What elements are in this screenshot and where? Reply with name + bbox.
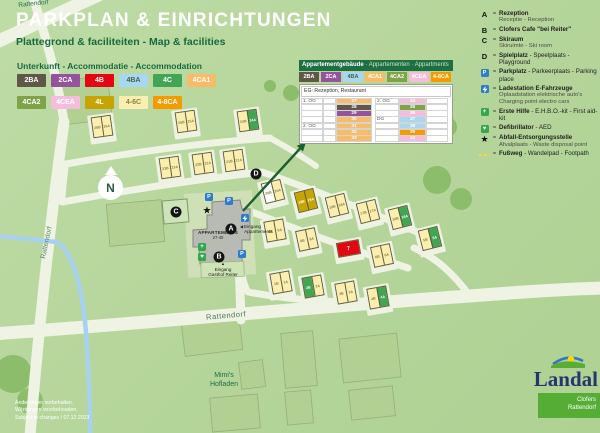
legend-term: Rezeption [499,10,529,17]
legend-letter-a-icon: A [482,11,487,19]
apartment-table-body: EG: Rezeption, Restaurant 1. OG272829302… [299,84,453,144]
cafe-b-marker: B [214,252,225,263]
first-aid-icon: + [481,108,489,116]
park-name-line-2: Rattendorf [538,404,596,412]
accommodation-badge-4CA1: 4CA1 [187,74,216,87]
waste-star-icon: ★ [480,135,488,144]
div-shape: ★ [479,135,490,144]
legend-subtext: Charging point electro cars [499,99,582,106]
apartment-table-header: Appartementgebäude · Appartementen · App… [299,60,453,71]
legend-subtext: Receptie - Reception [499,17,554,24]
legend-separator: = [490,10,499,18]
legend-letter-d-icon: D [482,53,487,61]
polygon-shape [243,215,248,222]
legend-text: Fußweg - Wandelpad - Footpath [499,150,589,157]
legend-separator: = [490,85,499,93]
disclaimer: Änderungen vorbehalten. Wijzigingen voor… [15,400,89,422]
apartment-table-row: 40 [375,136,448,142]
landal-wordmark: Landal [498,369,600,390]
parking-3-icon: P [238,250,246,258]
parking-icon: P [481,69,489,77]
legend-text: Parkplatz - Parkeerplaats - Parking plac… [499,68,599,83]
div-shape [479,151,490,157]
legend-subtext: Oplaadstation elektrische auto's [499,92,582,99]
apartment-33-cell: 33 [336,135,372,142]
accommodation-badges-row-1: 2BA2CA4B4BA4C4CA1 [17,74,216,87]
legend-separator: = [490,124,499,132]
legend-term: Erste Hilfe [499,108,530,115]
disclaimer-line-2: Wijzigingen voorbehouden. [15,407,89,414]
parking-1-icon: P [205,193,213,201]
ground-floor-row: EG: Rezeption, Restaurant [301,86,451,97]
legend-item-erste-hilfe: +=Erste Hilfe - E.H.B.O.-kit - First aid… [479,108,599,123]
legend-item-abfall-entsorgungsstelle: ★=Abfall-EntsorgungsstelleAfvalplaats - … [479,134,599,149]
legend-letter-c-icon: C [482,37,487,45]
apartment-type-badge-4CEA: 4CEA [409,72,429,82]
apartment-type-badge-4CA1: 4CA1 [365,72,385,82]
legend-item-defibrillator: ♥=Defibrillator - AED [479,124,599,133]
apartment-type-badge-4BA: 4BA [343,72,363,82]
defibrillator-icon: ♥ [481,125,489,133]
legend-term: Clofers Cafe "bei Reiter" [499,26,571,33]
legend-item-clofers-cafe-bei-reiter: B=Clofers Cafe "bei Reiter" [479,26,599,35]
apartment-table-title-translations: · Appartementen · Appartments [364,62,449,68]
legend-item-parkplatz: P=Parkplatz - Parkeerplaats - Parking pl… [479,68,599,83]
legend-term: Fußweg [499,150,522,157]
accommodation-badge-4BA: 4BA [119,74,148,87]
parking-2-icon: P [225,197,233,205]
park-name-line-1: Clofers [538,396,596,404]
floor-label [301,135,323,142]
apartment-table: Appartementgebäude · Appartementen · App… [299,60,453,144]
div-shape: P [479,69,490,77]
skiroom-c-marker: C [171,207,182,218]
legend-item-spielplatz: D=Spielplatz - Speelplaats - Playground [479,52,599,67]
legend-item-ladestation-e-fahrzeuge: =Ladestation E-FahrzeugeOplaadstation el… [479,85,599,107]
disclaimer-line-1: Änderungen vorbehalten. [15,400,89,407]
accommodation-badge-4CA2: 4CA2 [17,96,46,109]
apartment-table-row: 33 [301,136,372,142]
legend-separator: = [490,68,499,76]
legend-separator: = [490,134,499,142]
apartment-type-badges: 2BA2CA4BA4CA14CA24CEA4-8CA [299,72,453,82]
legend-text: Ladestation E-FahrzeugeOplaadstation ele… [499,85,582,107]
landal-park-name: Clofers Rattendorf [538,393,600,418]
div-shape: B [479,27,490,35]
apartment-type-badge-2BA: 2BA [299,72,319,82]
legend-separator: = [490,36,499,44]
accommodation-heading: Unterkunft - Accommodatie - Accommodatio… [17,61,202,71]
accommodation-badge-4B: 4B [85,74,114,87]
apartment-table-right: 2. OG343536DG37383940 [375,98,448,142]
div-shape: ♥ [479,125,490,133]
legend-term: Ladestation E-Fahrzeuge [499,85,573,92]
legend-term-translations: - Wandelpad - Footpath [522,150,589,157]
div-shape: C [479,37,490,45]
legend-term: Spielplatz [499,52,528,59]
polygon-shape [482,86,487,93]
apartment-table-title: Appartementgebäude [302,62,364,68]
accommodation-badge-2BA: 2BA [17,74,46,87]
legend-term-translations: - AED [534,124,552,131]
page-subtitle: Plattegrond & faciliteiten - Map & facil… [16,36,225,48]
legend-letter-b-icon: B [482,27,487,35]
legend-subtext: Afvalplaats - Waste disposal point [499,142,587,149]
legend-item-fu-weg: =Fußweg - Wandelpad - Footpath [479,150,599,158]
svg-shape [482,86,488,93]
apartment-type-badge-2CA: 2CA [321,72,341,82]
accommodation-badge-4L: 4L [85,96,114,109]
legend-text: Erste Hilfe - E.H.B.O.-kit - First aid-k… [499,108,599,123]
legend-separator: = [490,52,499,60]
first-aid-icon: + [198,243,206,251]
accommodation-badge-4CEA: 4CEA [51,96,80,109]
legend-text: Abfall-EntsorgungsstelleAfvalplaats - Wa… [499,134,587,149]
legend-term: Abfall-Entsorgungsstelle [499,134,572,141]
apartment-type-badge-4-8CA: 4-8CA [431,72,451,82]
facility-legend: A=RezeptionReceptie - ReceptionB=Clofers… [479,10,599,160]
legend-term: Defibrillator [499,124,534,131]
div-shape: D [479,53,490,61]
legend-term: Parkplatz [499,68,527,75]
div-shape [479,85,490,93]
defibrillator-icon: ♥ [198,253,206,261]
legend-term: Skiraum [499,36,523,43]
legend-text: RezeptionReceptie - Reception [499,10,554,25]
spacer-cell [323,135,336,142]
page-title: PARKPLAN & EINRICHTUNGEN [16,10,332,32]
reception-a-marker: A [226,224,237,235]
legend-text: Defibrillator - AED [499,124,552,131]
legend-item-rezeption: A=RezeptionReceptie - Reception [479,10,599,25]
playground-d-marker: D [251,169,262,180]
accommodation-badge-4C: 4C [153,74,182,87]
legend-text: SkiraumSkiruimte - Ski room [499,36,552,51]
circle-shape [568,356,574,362]
legend-subtext: Skiruimte - Ski room [499,43,552,50]
footpath-dash-icon [479,154,490,157]
ev-charging-icon [241,214,249,222]
legend-separator: = [490,108,499,116]
accommodation-badges-row-2: 4CA24CEA4L4-6C4-8CA [17,96,182,109]
spacer-cell [426,135,448,142]
legend-text: Clofers Cafe "bei Reiter" [499,26,571,33]
div-shape: A [479,11,490,19]
waste-disposal-icon: ★ [203,206,212,217]
apartment-type-badge-4CA2: 4CA2 [387,72,407,82]
disclaimer-line-3: Subject to changes / 07.12.2023 [15,415,89,422]
legend-text: Spielplatz - Speelplaats - Playground [499,52,599,67]
apartment-table-columns: 1. OG272829302. OG313233 2. OG343536DG37… [301,98,451,142]
landal-swoosh-icon [551,352,585,368]
floor-label [375,135,399,142]
legend-item-skiraum: C=SkiraumSkiruimte - Ski room [479,36,599,51]
landal-logo: Landal Clofers Rattendorf [498,352,600,418]
ev-charging-icon [481,85,489,93]
accommodation-badge-4-8CA: 4-8CA [153,96,182,109]
accommodation-badge-2CA: 2CA [51,74,80,87]
legend-separator: = [490,26,499,34]
apartment-table-left: 1. OG272829302. OG313233 [301,98,372,142]
legend-separator: = [490,150,499,158]
parkmap-poster: 26B26A25B25A24B24A23B23A22B22A21B21A20B2… [0,0,600,433]
apartment-40-cell: 40 [399,135,426,142]
svg-shape [242,215,248,222]
accommodation-badge-4-6C: 4-6C [119,96,148,109]
div-shape: + [479,108,490,116]
